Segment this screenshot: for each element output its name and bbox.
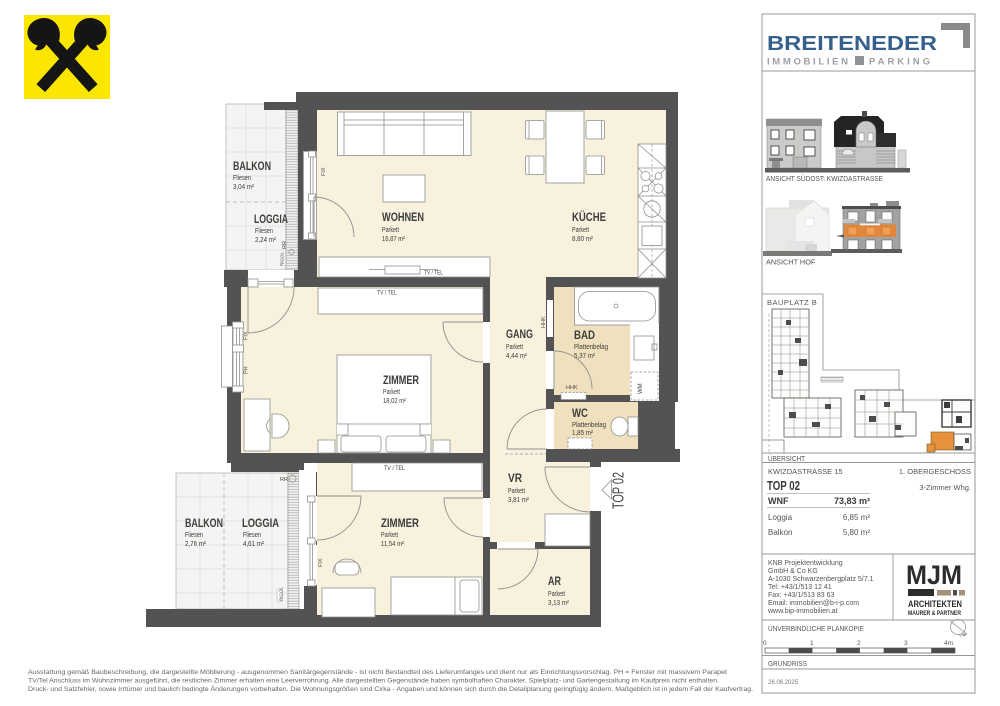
svg-text:FIX: FIX — [318, 558, 324, 567]
svg-text:Balkon: Balkon — [768, 528, 792, 537]
svg-text:MAURER & PARTNER: MAURER & PARTNER — [908, 611, 962, 617]
svg-text:18,02 m²: 18,02 m² — [383, 398, 407, 405]
svg-text:LOGGIA: LOGGIA — [254, 212, 288, 226]
svg-text:Parkett: Parkett — [508, 488, 525, 495]
svg-text:Fliesen: Fliesen — [185, 532, 203, 539]
svg-text:TV/Tel Anschluss im Wohnzimmer: TV/Tel Anschluss im Wohnzimmer ausgeführ… — [28, 679, 719, 685]
svg-text:ANSICHT HOF: ANSICHT HOF — [766, 258, 816, 267]
svg-text:KNB Projektentwicklung: KNB Projektentwicklung — [768, 560, 843, 567]
svg-text:Parkett: Parkett — [572, 227, 589, 234]
svg-text:ZIMMER: ZIMMER — [383, 373, 419, 387]
svg-text:TOP 02: TOP 02 — [767, 479, 800, 493]
svg-text:1. OBERGESCHOSS: 1. OBERGESCHOSS — [899, 467, 971, 476]
svg-text:ÜBERSICHT: ÜBERSICHT — [768, 454, 805, 463]
svg-text:3: 3 — [904, 640, 908, 647]
svg-text:GmbH & Co KG: GmbH & Co KG — [768, 568, 818, 575]
svg-text:Email: immobilien@b-i-p.com: Email: immobilien@b-i-p.com — [768, 600, 859, 607]
svg-text:4,61 m²: 4,61 m² — [243, 541, 265, 548]
svg-text:16,87 m²: 16,87 m² — [382, 236, 406, 243]
svg-text:4m: 4m — [944, 640, 953, 647]
svg-text:Parkett: Parkett — [383, 389, 400, 396]
svg-text:Ausstattung gemäß Baubeschreib: Ausstattung gemäß Baubeschreibung, die d… — [28, 670, 727, 676]
svg-text:8,80 m²: 8,80 m² — [572, 236, 594, 243]
svg-text:GANG: GANG — [506, 329, 533, 341]
svg-text:BALKON: BALKON — [185, 516, 223, 530]
svg-text:BALKON: BALKON — [233, 159, 271, 173]
svg-text:LOGGIA: LOGGIA — [242, 516, 279, 530]
svg-text:www.bip-immobilien.at: www.bip-immobilien.at — [767, 608, 838, 615]
svg-text:Fliesen: Fliesen — [255, 228, 273, 235]
svg-text:RR: RR — [282, 241, 288, 249]
svg-text:Parkett: Parkett — [381, 532, 398, 539]
svg-text:BAUPLATZ B: BAUPLATZ B — [767, 298, 817, 307]
svg-text:3-Zimmer Whg.: 3-Zimmer Whg. — [919, 483, 971, 492]
svg-text:2,24 m²: 2,24 m² — [255, 237, 277, 244]
svg-text:Parkett: Parkett — [506, 344, 523, 351]
svg-text:2: 2 — [857, 640, 861, 647]
svg-text:2,76 m²: 2,76 m² — [185, 541, 207, 548]
svg-text:Loggia: Loggia — [768, 513, 793, 522]
svg-text:Fliesen: Fliesen — [233, 175, 251, 182]
svg-text:3,13 m²: 3,13 m² — [548, 600, 570, 607]
svg-text:TV / TEL: TV / TEL — [424, 270, 443, 277]
svg-text:HHK: HHK — [541, 316, 547, 328]
svg-text:UNVERBINDLICHE PLANKOPIE: UNVERBINDLICHE PLANKOPIE — [768, 624, 864, 633]
svg-text:MJM: MJM — [906, 560, 962, 590]
svg-text:WC: WC — [572, 408, 588, 420]
svg-text:BREITENEDER: BREITENEDER — [767, 33, 938, 55]
svg-text:ZIMMER: ZIMMER — [381, 516, 419, 530]
svg-text:TV / TEL: TV / TEL — [384, 465, 405, 472]
svg-text:0: 0 — [763, 640, 767, 647]
svg-text:ANSICHT SÜDOST: KWIZDASTRASSE: ANSICHT SÜDOST: KWIZDASTRASSE — [766, 174, 883, 183]
svg-text:HHK: HHK — [566, 385, 578, 391]
svg-text:1: 1 — [810, 640, 814, 647]
svg-text:IMMOBILIEN: IMMOBILIEN — [767, 57, 848, 68]
svg-text:4,44 m²: 4,44 m² — [506, 353, 528, 360]
svg-text:TV / TEL: TV / TEL — [377, 290, 397, 297]
svg-text:VR: VR — [508, 473, 523, 485]
svg-text:Fax: +43/1/513 83 63: Fax: +43/1/513 83 63 — [768, 592, 834, 599]
svg-text:Parkett: Parkett — [382, 227, 399, 234]
svg-text:Fliesen: Fliesen — [243, 532, 261, 539]
svg-text:5,80 m²: 5,80 m² — [843, 528, 870, 537]
svg-text:Tel: +43/1/513 12 41: Tel: +43/1/513 12 41 — [768, 584, 832, 591]
svg-text:FIX: FIX — [321, 167, 327, 176]
svg-text:PH: PH — [244, 366, 250, 374]
svg-text:WNF: WNF — [768, 496, 789, 506]
svg-text:KÜCHE: KÜCHE — [572, 209, 606, 224]
svg-text:5,37 m²: 5,37 m² — [574, 353, 596, 360]
svg-text:A-1030 Schwarzenbergplatz 5/7.: A-1030 Schwarzenbergplatz 5/7.1 — [768, 576, 874, 583]
svg-text:ARCHITEKTEN: ARCHITEKTEN — [908, 599, 962, 610]
svg-text:Plattenbelag: Plattenbelag — [574, 344, 608, 351]
svg-text:RR: RR — [280, 477, 288, 483]
svg-text:6,85 m²: 6,85 m² — [843, 513, 870, 522]
svg-text:3,81 m²: 3,81 m² — [508, 497, 530, 504]
svg-text:26.06.2025: 26.06.2025 — [768, 680, 799, 686]
svg-text:RIGOL: RIGOL — [280, 251, 285, 266]
svg-text:GRUNDRISS: GRUNDRISS — [768, 659, 807, 668]
svg-text:Parkett: Parkett — [548, 591, 565, 598]
svg-text:FIX: FIX — [244, 331, 250, 340]
svg-text:11,54 m²: 11,54 m² — [381, 541, 405, 548]
svg-text:Plattenbelag: Plattenbelag — [572, 422, 606, 429]
svg-text:TOP 02: TOP 02 — [611, 472, 628, 509]
svg-text:WM: WM — [638, 383, 644, 394]
svg-text:73,83 m²: 73,83 m² — [834, 496, 870, 506]
svg-text:1,85 m²: 1,85 m² — [572, 430, 594, 437]
svg-text:KWIZDASTRASSE 15: KWIZDASTRASSE 15 — [768, 467, 843, 476]
svg-text:RIGOL: RIGOL — [279, 586, 284, 601]
svg-text:WOHNEN: WOHNEN — [382, 210, 424, 224]
svg-text:Druck- und Satzfehler, sowie I: Druck- und Satzfehler, sowie Irrtümer un… — [28, 686, 753, 693]
svg-text:BAD: BAD — [574, 330, 595, 342]
svg-text:AR: AR — [548, 576, 562, 588]
svg-text:3,04 m²: 3,04 m² — [233, 184, 255, 191]
